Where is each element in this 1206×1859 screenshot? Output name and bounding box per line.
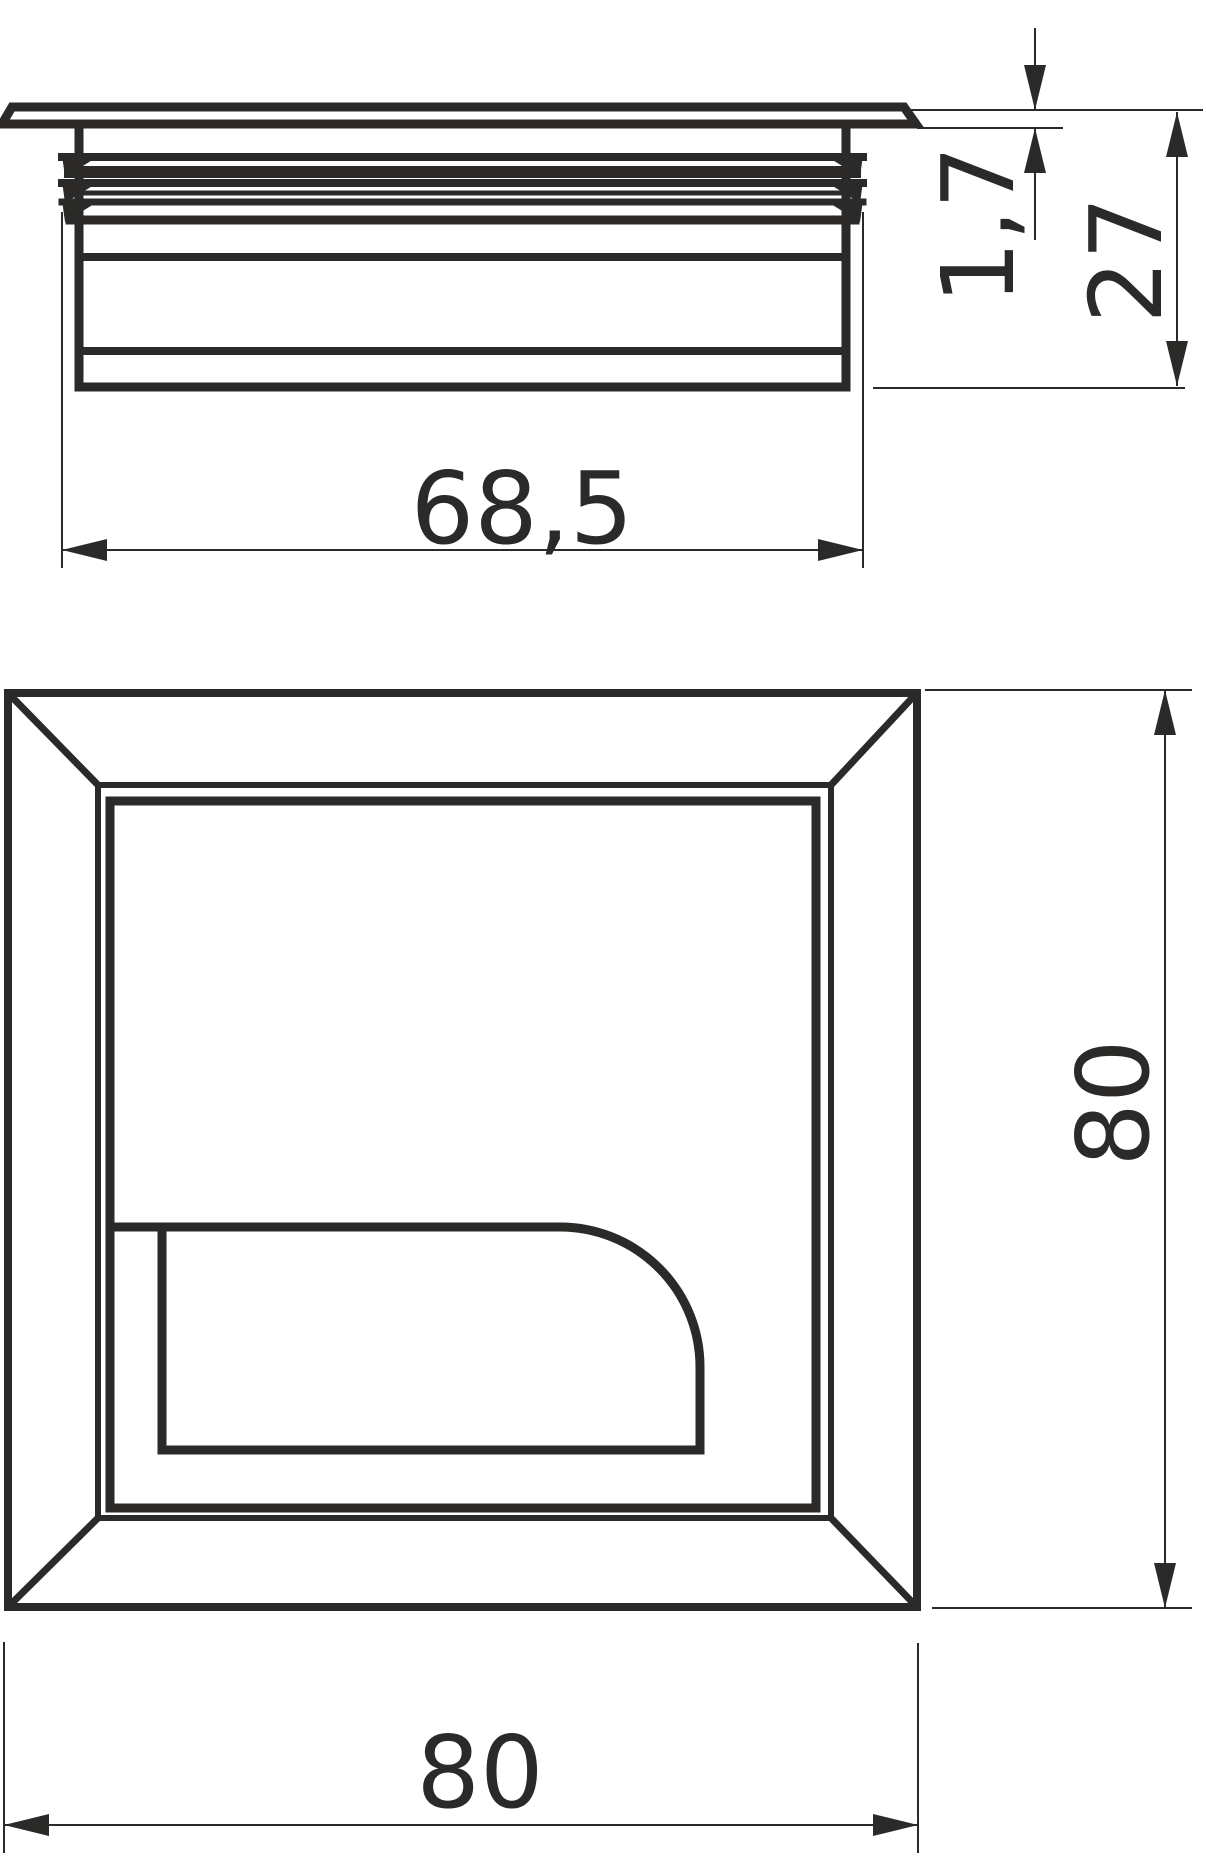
technical-drawing: 68,5 1,7 27 — [0, 0, 1206, 1855]
drawing-canvas: 68,5 1,7 27 — [0, 0, 1206, 1855]
dim-label-side-width: 68,5 — [411, 450, 634, 567]
plan-view-miters — [11, 696, 914, 1604]
plan-view-outer-square — [8, 693, 917, 1607]
dim-label-plan-width: 80 — [416, 1714, 543, 1831]
side-view: 68,5 1,7 27 — [2, 28, 1203, 568]
dim-label-side-height: 27 — [1068, 196, 1185, 323]
dimension-plan-width: 80 — [4, 1642, 918, 1853]
plan-view-recess-square — [110, 801, 816, 1508]
side-view-flange — [2, 107, 916, 124]
plan-view-bevel-square — [98, 785, 831, 1518]
dim-label-flange-thickness: 1,7 — [920, 145, 1037, 304]
side-view-ribs — [62, 155, 863, 351]
plan-view-cable-cover — [111, 1227, 700, 1450]
dimension-plan-height: 80 — [925, 690, 1192, 1608]
plan-view: 80 80 — [4, 690, 1192, 1853]
dim-label-plan-height: 80 — [1055, 1039, 1172, 1166]
